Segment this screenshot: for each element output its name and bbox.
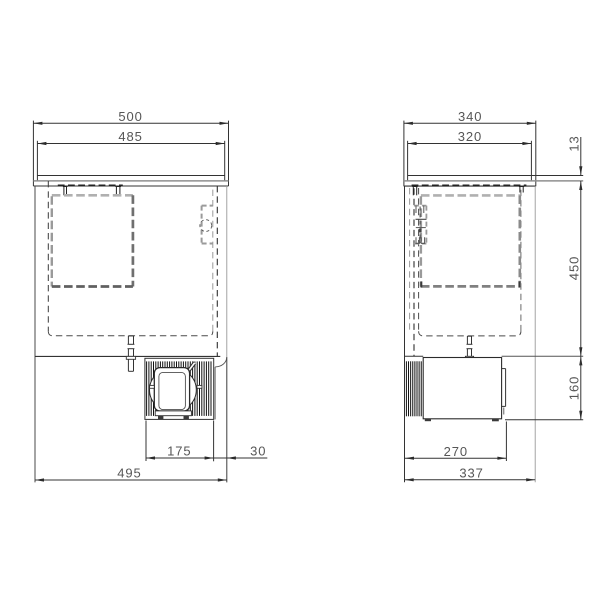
svg-text:495: 495 bbox=[117, 465, 141, 480]
svg-text:160: 160 bbox=[566, 376, 581, 400]
svg-text:175: 175 bbox=[167, 444, 191, 459]
svg-text:485: 485 bbox=[118, 129, 142, 144]
svg-text:340: 340 bbox=[458, 109, 482, 124]
svg-text:13: 13 bbox=[566, 135, 581, 151]
svg-text:450: 450 bbox=[566, 256, 581, 280]
svg-text:500: 500 bbox=[118, 109, 142, 124]
svg-text:270: 270 bbox=[444, 444, 468, 459]
svg-text:337: 337 bbox=[459, 465, 483, 480]
svg-text:30: 30 bbox=[250, 444, 266, 459]
svg-text:320: 320 bbox=[458, 129, 482, 144]
